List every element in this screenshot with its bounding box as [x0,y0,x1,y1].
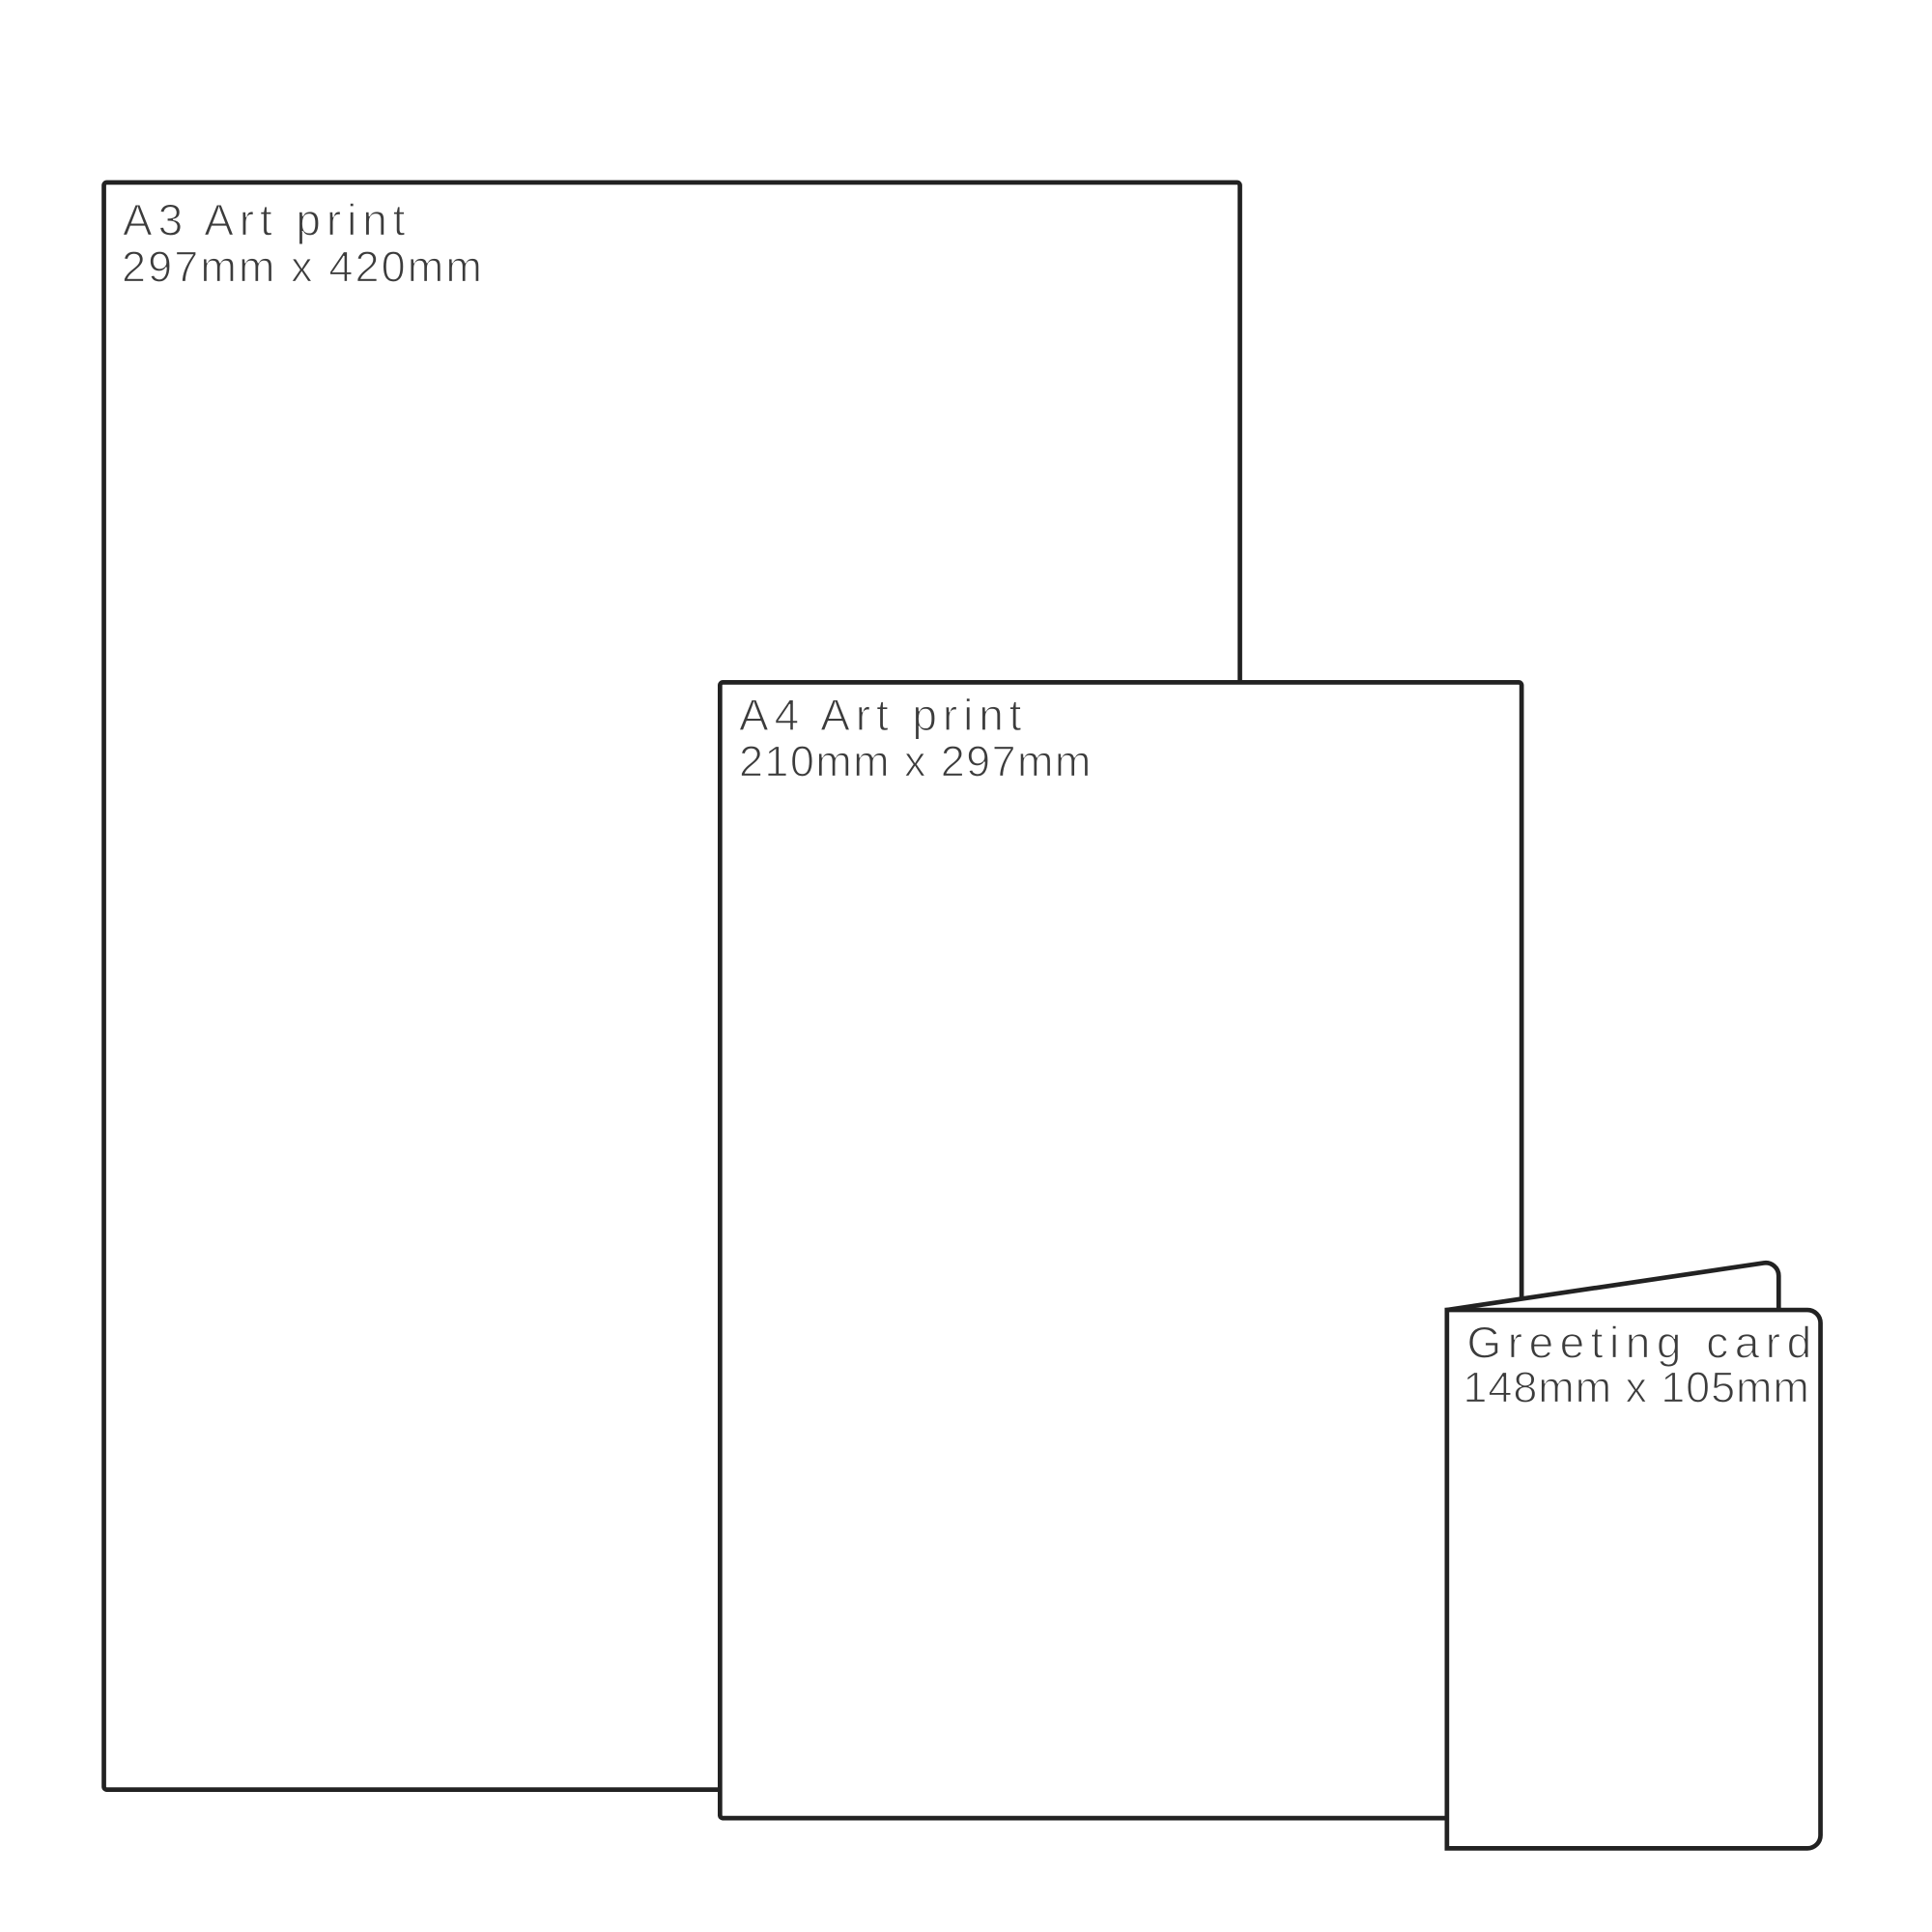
svg-text:A4 Art print: A4 Art print [739,690,1027,740]
svg-text:148mm x 105mm: 148mm x 105mm [1463,1363,1810,1412]
svg-text:210mm x 297mm: 210mm x 297mm [739,737,1093,786]
svg-text:297mm x 420mm: 297mm x 420mm [122,241,484,291]
svg-text:A3 Art print: A3 Art print [123,195,411,245]
svg-text:Greeting card: Greeting card [1467,1318,1818,1368]
